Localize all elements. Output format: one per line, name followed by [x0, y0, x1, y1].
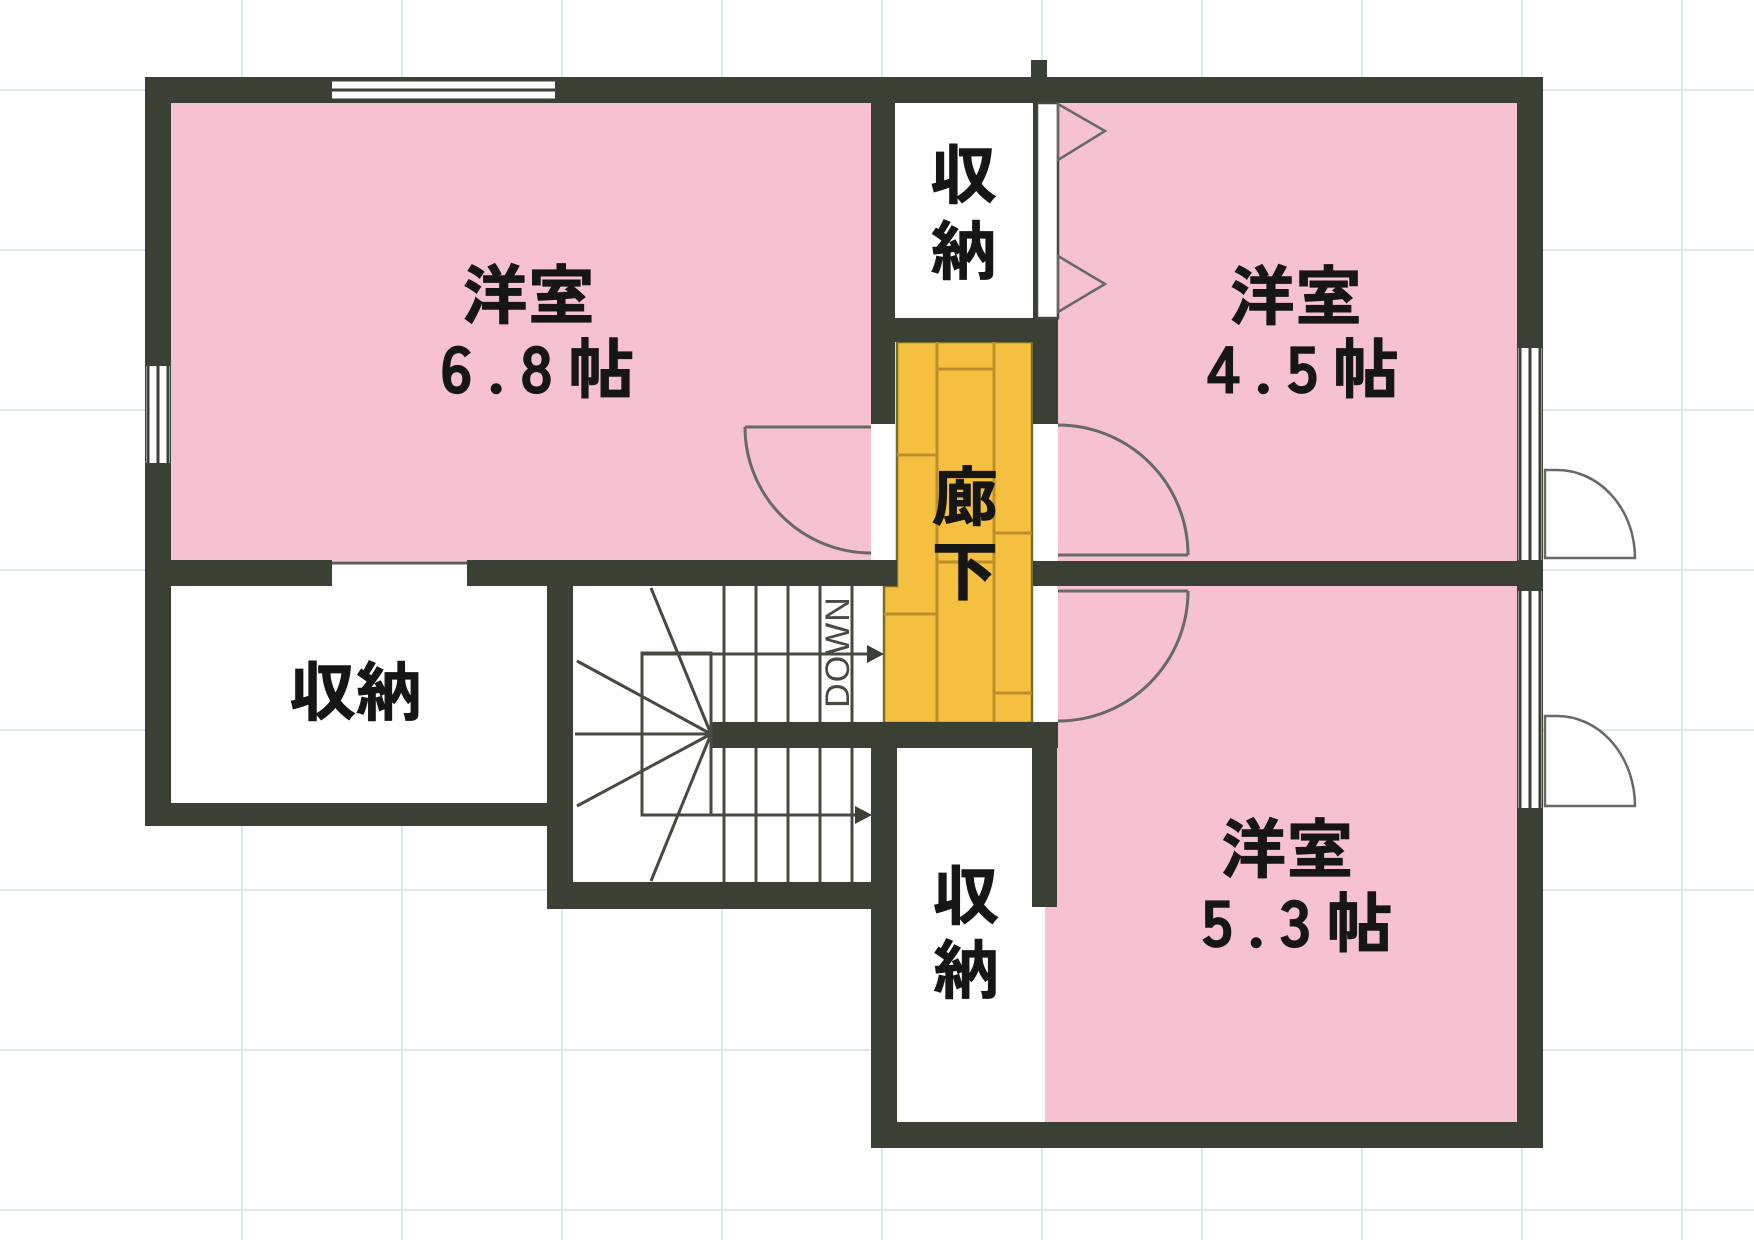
svg-text:DOWN: DOWN — [819, 596, 857, 708]
